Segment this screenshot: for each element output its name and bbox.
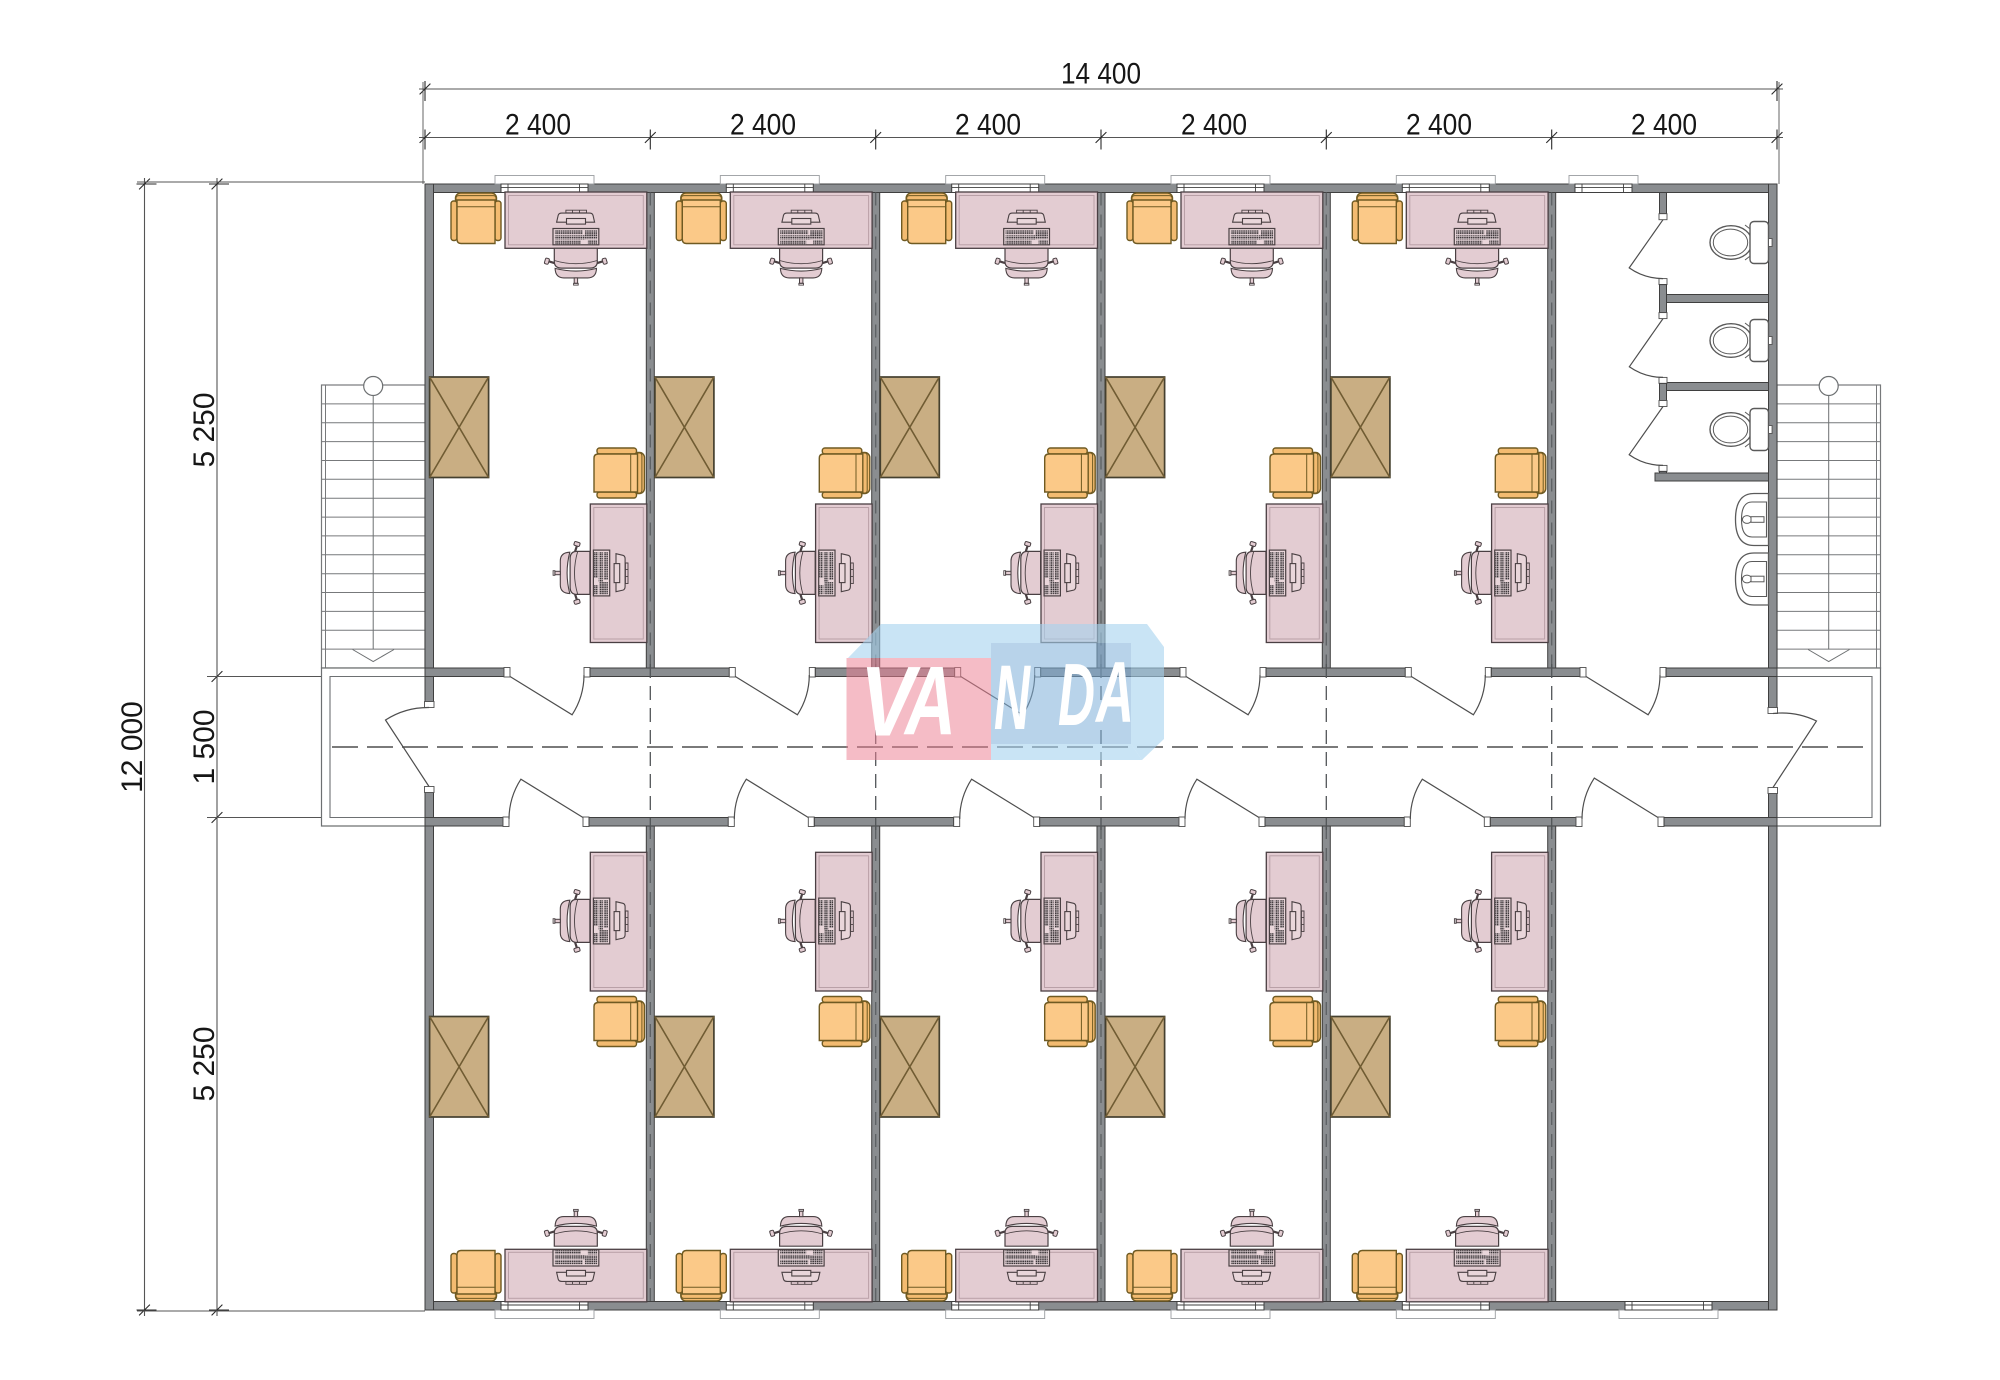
svg-text:A: A — [904, 646, 956, 755]
svg-text:D: D — [1058, 645, 1095, 744]
svg-text:N: N — [994, 647, 1031, 749]
svg-text:12 000: 12 000 — [116, 701, 149, 793]
svg-text:5 250: 5 250 — [188, 392, 221, 467]
svg-text:2 400: 2 400 — [730, 108, 796, 141]
svg-text:14 400: 14 400 — [1061, 58, 1141, 91]
svg-text:2 400: 2 400 — [505, 108, 571, 141]
svg-text:2 400: 2 400 — [1181, 108, 1247, 141]
svg-text:A: A — [1095, 645, 1134, 741]
svg-text:2 400: 2 400 — [955, 108, 1021, 141]
svg-text:2 400: 2 400 — [1631, 108, 1697, 141]
svg-text:2 400: 2 400 — [1406, 108, 1472, 141]
svg-text:5 250: 5 250 — [188, 1026, 221, 1101]
svg-text:1 500: 1 500 — [188, 709, 221, 784]
